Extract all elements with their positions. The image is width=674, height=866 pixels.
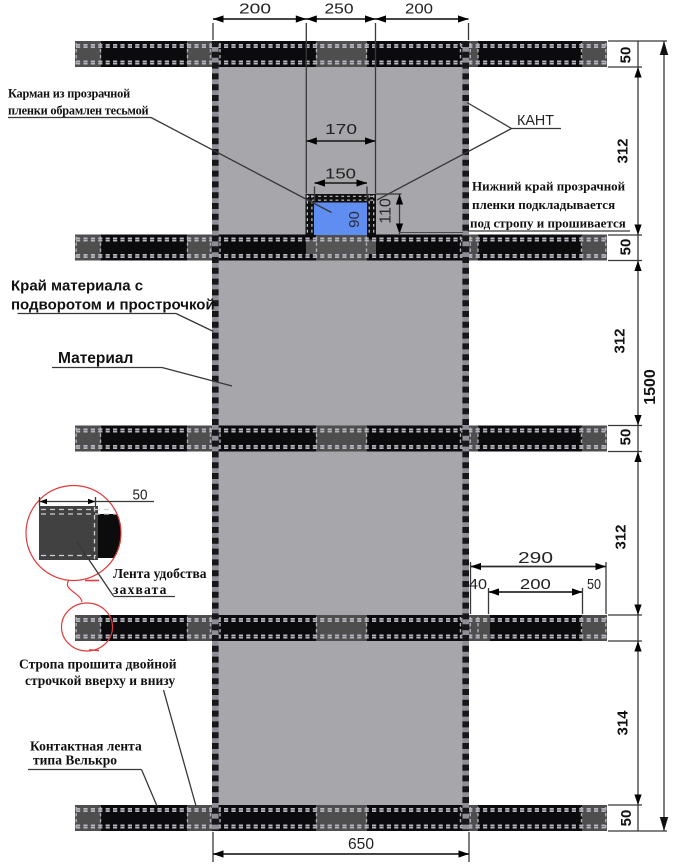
svg-text:50: 50 (133, 487, 148, 504)
svg-text:200: 200 (520, 576, 551, 593)
svg-text:Карман из прозрачной: Карман из прозрачной (8, 87, 130, 101)
svg-text:Нижний край прозрачной: Нижний край прозрачной (472, 179, 626, 194)
svg-text:200: 200 (239, 1, 271, 18)
svg-text:Край материала с: Край материала с (11, 278, 143, 295)
svg-text:150: 150 (325, 166, 356, 183)
svg-text:захвата: захвата (113, 582, 168, 597)
svg-text:650: 650 (348, 836, 374, 853)
svg-text:312: 312 (613, 524, 630, 549)
svg-text:50: 50 (587, 576, 601, 593)
svg-text:Материал: Материал (58, 350, 133, 367)
svg-text:50: 50 (618, 47, 635, 64)
svg-text:312: 312 (615, 138, 632, 163)
svg-text:40: 40 (469, 576, 487, 593)
svg-text:200: 200 (405, 1, 433, 18)
svg-text:подворотом и прострочкой: подворотом и прострочкой (11, 297, 215, 314)
svg-text:пленки обрамлен тесьмой: пленки обрамлен тесьмой (8, 104, 149, 118)
svg-text:Стропа прошита двойной: Стропа прошита двойной (19, 657, 177, 672)
svg-text:250: 250 (325, 1, 354, 18)
svg-text:50: 50 (618, 429, 635, 446)
svg-text:170: 170 (325, 121, 357, 138)
svg-text:90: 90 (346, 211, 363, 228)
svg-text:50: 50 (618, 239, 635, 256)
svg-text:Контактная лента: Контактная лента (30, 739, 142, 754)
svg-text:Лента удобства: Лента удобства (113, 566, 207, 581)
svg-text:314: 314 (615, 710, 632, 736)
svg-text:под стропу и прошивается: под стропу и прошивается (470, 216, 626, 231)
svg-text:50: 50 (618, 810, 635, 827)
svg-text:1500: 1500 (642, 369, 659, 405)
svg-text:312: 312 (612, 328, 629, 353)
svg-text:пленки подкладывается: пленки подкладывается (472, 197, 615, 212)
svg-text:290: 290 (518, 550, 553, 567)
svg-text:типа Велькро: типа Велькро (33, 753, 117, 768)
svg-text:КАНТ: КАНТ (517, 112, 554, 129)
svg-text:110: 110 (378, 198, 395, 224)
svg-text:строчкой вверху и внизу: строчкой вверху и внизу (25, 673, 175, 688)
